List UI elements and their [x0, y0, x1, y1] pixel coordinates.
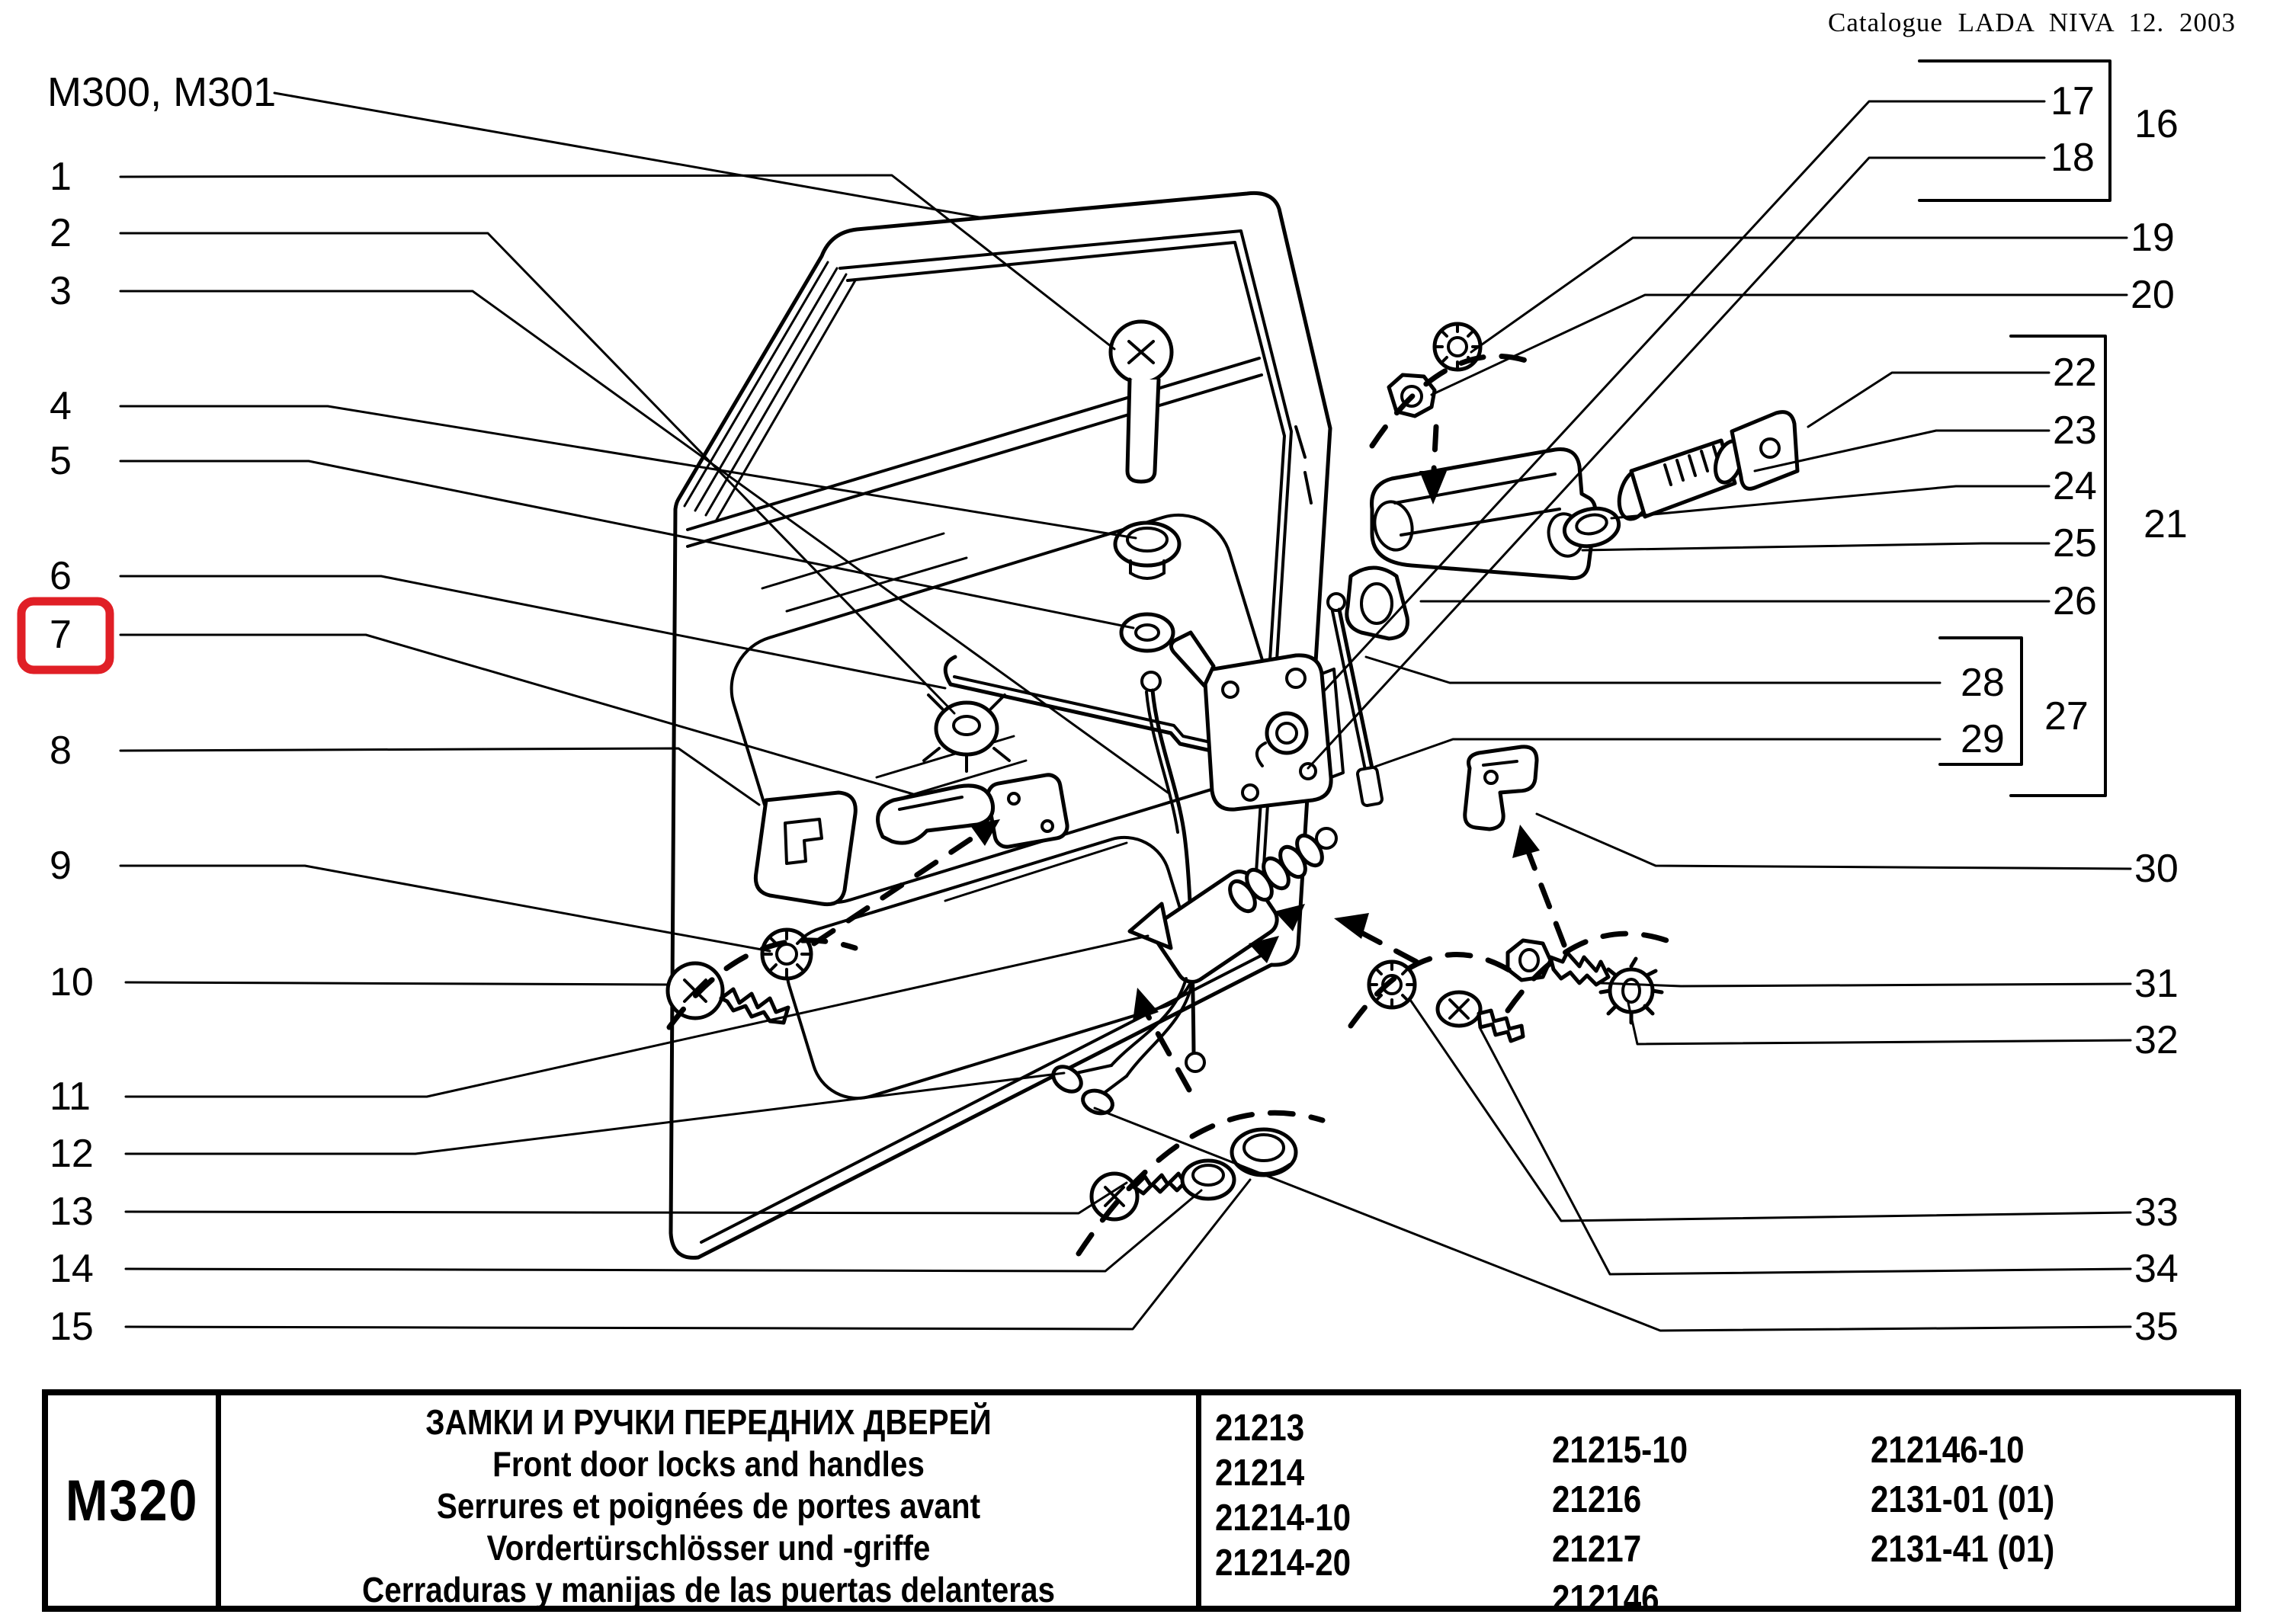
model-number: 21214-10 [1215, 1496, 1351, 1541]
callout-18: 18 [2051, 136, 2095, 180]
leader-line-15 [126, 1180, 1250, 1329]
leader-line-32 [1628, 1003, 2131, 1044]
model-number: 212146 [1552, 1574, 1688, 1624]
model-number: 21215-10 [1552, 1426, 1688, 1475]
model-number: 2131-01 (01) [1871, 1475, 2054, 1525]
callout-17: 17 [2051, 79, 2095, 123]
callout-12: 12 [50, 1132, 94, 1176]
callout-21: 21 [2144, 502, 2188, 546]
model-column-2: 21215-102121621217212146 [1552, 1426, 1710, 1624]
callout-4: 4 [50, 384, 72, 428]
leader-line-13 [126, 1183, 1127, 1213]
callout-5: 5 [50, 439, 72, 483]
callout-19: 19 [2131, 216, 2175, 260]
section-code-cell: M320 [48, 1395, 221, 1606]
leader-line-11 [126, 936, 1148, 1097]
model-column-3: 212146-102131-01 (01)2131-41 (01) [1871, 1426, 2085, 1574]
spec-table: M320 ЗАМКИ И РУЧКИ ПЕРЕДНИХ ДВЕРЕЙFront … [42, 1389, 2241, 1612]
leader-line-25 [1582, 543, 2049, 550]
model-label: M300, M301 [47, 69, 276, 115]
model-number: 21214 [1215, 1451, 1351, 1496]
leader-line-14 [126, 1190, 1201, 1271]
leader-line-34 [1480, 1029, 2131, 1274]
section-title-line-2: Front door locks and handles [280, 1443, 1138, 1485]
leader-line-29 [1375, 739, 1940, 767]
leader-line-30 [1537, 814, 2131, 869]
applicable-models-cell: 212132121421214-1021214-20 21215-1021216… [1201, 1395, 2235, 1606]
callout-32: 32 [2134, 1018, 2179, 1062]
leader-line-5 [120, 461, 1133, 628]
callout-16: 16 [2134, 102, 2179, 146]
striker-bolt-group [1508, 825, 1671, 1023]
model-column-1: 212132121421214-1021214-20 [1215, 1406, 1373, 1586]
leader-line-model [274, 93, 983, 218]
callout-29: 29 [1961, 717, 2005, 761]
model-number: 21216 [1552, 1475, 1688, 1525]
section-title-cell: ЗАМКИ И РУЧКИ ПЕРЕДНИХ ДВЕРЕЙFront door … [221, 1395, 1201, 1606]
section-title-line-4: Vordertürschlösser und -griffe [280, 1527, 1138, 1569]
leader-line-4 [120, 406, 1136, 538]
lock-cylinder-group [1561, 412, 1797, 551]
section-title-line-3: Serrures et poignées de portes avant [280, 1485, 1138, 1527]
inner-door-handle [878, 773, 1069, 848]
handle-gasket [1347, 568, 1408, 639]
leader-line-20 [1432, 295, 2127, 395]
callout-9: 9 [50, 844, 72, 888]
leader-line-10 [126, 982, 669, 985]
actuator-screw-group [1334, 913, 1523, 1041]
section-title-line-1: ЗАМКИ И РУЧКИ ПЕРЕДНИХ ДВЕРЕЙ [280, 1401, 1138, 1443]
callout-1: 1 [50, 155, 72, 199]
callout-11: 11 [50, 1075, 91, 1119]
section-code: M320 [66, 1468, 198, 1534]
callout-20: 20 [2131, 273, 2175, 317]
callout-27: 27 [2044, 694, 2089, 738]
callout-15: 15 [50, 1305, 94, 1349]
leader-line-6 [120, 576, 945, 688]
callout-26: 26 [2053, 579, 2097, 623]
model-number: 2131-41 (01) [1871, 1525, 2054, 1574]
callout-28: 28 [1961, 661, 2005, 705]
outside-door-handle [1370, 449, 1595, 578]
lock-button [1111, 322, 1172, 482]
catalogue-page: Catalogue LADA NIVA 12. 2003 [0, 0, 2283, 1624]
callout-2: 2 [50, 211, 72, 255]
model-number: 21214-20 [1215, 1541, 1351, 1586]
callout-30: 30 [2134, 847, 2179, 891]
grommet-screw-group [1079, 988, 1323, 1254]
leader-line-28 [1366, 657, 1940, 683]
callout-24: 24 [2053, 464, 2097, 508]
section-title-line-5: Cerraduras y manijas de las puertas dela… [280, 1569, 1138, 1611]
callout-7: 7 [50, 613, 72, 657]
exploded-diagram: 1234567891011121314151617181920212223242… [0, 0, 2283, 1624]
model-number: 212146-10 [1871, 1426, 2054, 1475]
callout-13: 13 [50, 1190, 94, 1234]
callout-35: 35 [2134, 1305, 2179, 1349]
callout-6: 6 [50, 554, 72, 598]
model-number: 21213 [1215, 1406, 1351, 1451]
lock-striker [1465, 747, 1537, 829]
callout-25: 25 [2053, 521, 2097, 565]
lock-actuator [1049, 828, 1336, 1117]
leader-lines [120, 93, 2131, 1331]
leader-line-1 [120, 175, 1114, 349]
leader-line-31 [1601, 983, 2131, 986]
callout-31: 31 [2134, 962, 2179, 1006]
callout-8: 8 [50, 729, 72, 773]
callout-3: 3 [50, 269, 72, 313]
leader-line-22 [1808, 373, 2049, 427]
callout-34: 34 [2134, 1247, 2179, 1291]
handle-escutcheon [755, 793, 855, 905]
lock-button-ferrule [1115, 523, 1179, 578]
lock-rod-washer [1121, 614, 1173, 651]
callout-33: 33 [2134, 1190, 2179, 1235]
callout-22: 22 [2053, 351, 2097, 395]
model-number: 21217 [1552, 1525, 1688, 1574]
leader-line-8 [120, 748, 759, 805]
callout-14: 14 [50, 1247, 94, 1291]
leader-line-33 [1410, 1000, 2131, 1221]
part-number-callouts: 1234567891011121314151617181920212223242… [21, 79, 2188, 1349]
callout-10: 10 [50, 960, 94, 1004]
callout-23: 23 [2053, 408, 2097, 453]
leader-line-3 [120, 291, 1168, 793]
